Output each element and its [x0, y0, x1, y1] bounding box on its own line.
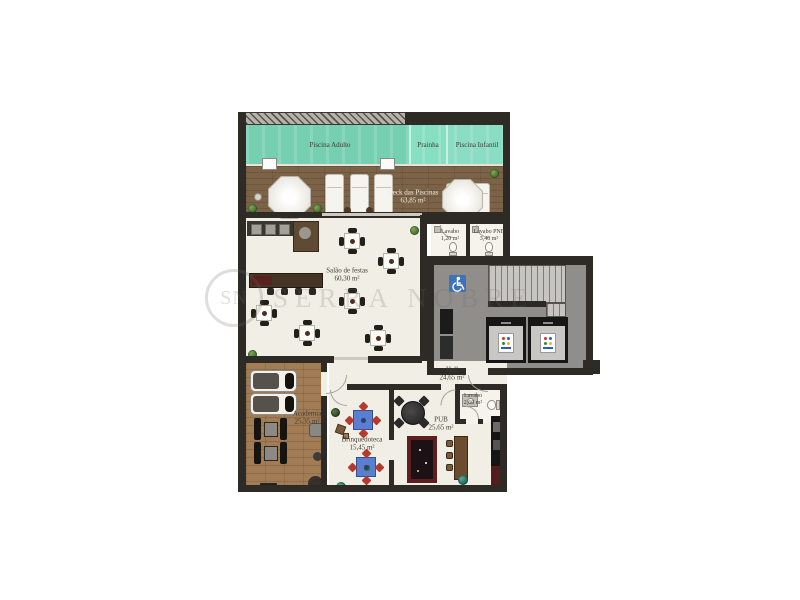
dining-table — [256, 305, 272, 321]
room-label-lavabo-2: Lavabo 2,60 m² — [464, 393, 482, 407]
door-opening — [466, 368, 488, 375]
room-name: Deck das Piscinas — [388, 189, 439, 197]
wall — [238, 485, 507, 492]
bar-counter — [249, 273, 323, 288]
room-name: Piscina Adulto — [309, 141, 350, 149]
room-label-piscina-adulto: Piscina Adulto — [309, 141, 350, 149]
wall — [500, 384, 507, 492]
room-label-salao-de-festas: Salão de festas 60,30 m² — [326, 267, 368, 284]
room-name: Lavabo PNE — [474, 229, 505, 236]
elevator-brand-logo-icon — [502, 337, 510, 345]
room-name: Hall — [439, 366, 464, 374]
elevator — [528, 317, 568, 363]
wall — [347, 384, 391, 390]
stair-rail — [488, 301, 546, 307]
elevator-poster — [498, 333, 514, 353]
bar-stool — [446, 452, 453, 459]
deck-drain — [254, 193, 262, 201]
room-area: 3,40 m² — [474, 236, 505, 243]
room-name: PUB — [428, 416, 453, 424]
room-name: Piscina Infantil — [456, 141, 499, 149]
elevator-brand-logo-icon — [544, 337, 552, 345]
room-label-pub: PUB 25,65 m² — [428, 416, 453, 433]
glass-door — [322, 213, 422, 216]
wheelchair-accessibility-icon — [449, 275, 466, 292]
bar-stool — [295, 288, 302, 295]
room-name: Prainha — [417, 141, 438, 149]
door-opening — [466, 419, 478, 424]
room-name: Academia — [293, 410, 321, 418]
room-name: Salão de festas — [326, 267, 368, 275]
room-name: Lavabo — [441, 229, 459, 236]
door-opening — [389, 440, 394, 460]
plant-icon — [331, 408, 340, 417]
glass-door — [334, 357, 368, 360]
room-label-brinquedoteca: Brinquedoteca 15,45 m² — [342, 436, 383, 453]
plant-icon — [458, 475, 468, 485]
utility-shaft — [440, 336, 453, 359]
plant-icon — [410, 226, 419, 235]
toilet-icon — [487, 400, 496, 410]
dining-table — [344, 233, 360, 249]
wall — [455, 384, 460, 424]
utility-shaft — [440, 309, 453, 334]
wall — [368, 356, 422, 363]
room-label-lavabo-1: Lavabo 1,20 m² — [441, 229, 459, 243]
bar-stool — [267, 288, 274, 295]
pool-steps — [262, 158, 277, 170]
pool-steps — [380, 158, 395, 170]
weight-machine — [254, 418, 287, 440]
room-label-piscina-infantil: Piscina Infantil — [456, 141, 499, 149]
wall-hatched — [238, 112, 408, 125]
kids-table — [356, 457, 376, 477]
dining-table — [344, 293, 360, 309]
pool-table — [407, 436, 437, 483]
dining-table — [370, 330, 386, 346]
toilet-icon — [449, 242, 457, 252]
stairs — [488, 265, 566, 303]
elevator — [486, 317, 526, 363]
wall — [238, 112, 246, 492]
bar-stool — [281, 288, 288, 295]
room-label-lavabo-pne: Lavabo PNE 3,40 m² — [474, 229, 505, 243]
room-name: Brinquedoteca — [342, 436, 383, 444]
wall — [466, 224, 470, 258]
wall — [420, 215, 427, 361]
dining-table — [299, 325, 315, 341]
room-label-deck: Deck das Piscinas 63,85 m² — [388, 189, 439, 206]
wall — [427, 215, 510, 224]
floor-plan: SN SERRA NOBRE Piscina Adulto Prainha Pi… — [0, 0, 800, 600]
treadmill — [250, 393, 297, 415]
kitchen-cabinet — [293, 221, 319, 252]
room-label-prainha: Prainha — [417, 141, 438, 149]
kitchen-counter — [247, 221, 295, 236]
room-area: 2,60 m² — [464, 400, 482, 407]
wall — [391, 384, 441, 390]
wall — [427, 256, 593, 265]
room-area: 15,45 m² — [342, 444, 383, 452]
room-area: 63,85 m² — [388, 197, 439, 205]
kids-table — [353, 410, 373, 430]
room-area: 25,35 m² — [293, 418, 321, 426]
room-area: 60,30 m² — [326, 275, 368, 283]
stairs-lower — [546, 303, 566, 317]
treadmill — [250, 370, 297, 392]
room-area: 1,20 m² — [441, 236, 459, 243]
wall — [405, 112, 510, 125]
wall — [427, 256, 434, 375]
room-area: 24,65 m² — [439, 374, 464, 382]
elevator-poster — [540, 333, 556, 353]
bar-stool — [446, 464, 453, 471]
pub-bar-counter — [454, 436, 468, 480]
room-name: Lavabo — [464, 393, 482, 400]
dining-table — [383, 253, 399, 269]
room-label-hall: Hall 24,65 m² — [439, 366, 464, 383]
plant-icon — [490, 169, 499, 178]
weight-machine — [254, 442, 287, 464]
bar-stool — [446, 440, 453, 447]
wall-pillar — [583, 360, 600, 374]
room-area: 25,65 m² — [428, 424, 453, 432]
wall — [238, 356, 334, 363]
wall — [586, 256, 593, 375]
bar-stool — [309, 288, 316, 295]
room-label-academia: Academia 25,35 m² — [293, 410, 321, 427]
toilet-icon — [485, 242, 493, 252]
